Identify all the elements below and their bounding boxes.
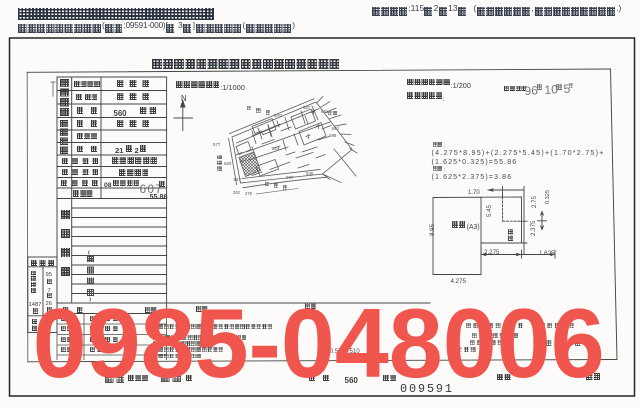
svg-text:0985-048006: 0985-048006 bbox=[33, 288, 605, 398]
